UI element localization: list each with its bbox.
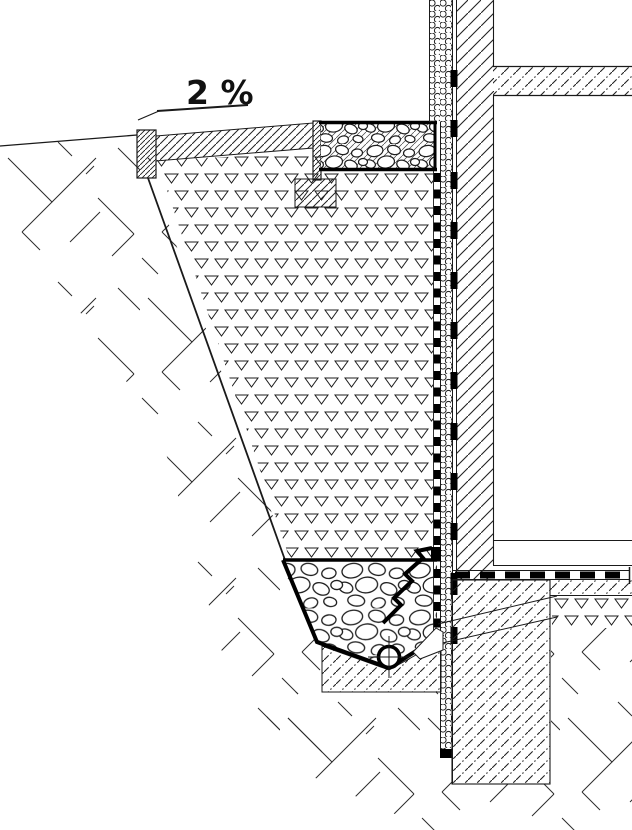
interior-floor-layers (493, 541, 632, 566)
kerb-block (137, 130, 156, 178)
construction-detail-drawing: 2 % (0, 0, 632, 830)
underslab-gravel-layer (552, 597, 632, 626)
insulation-end-cap (440, 749, 452, 758)
slope-symbol-tick (138, 111, 159, 120)
perimeter-insulation-top (429, 0, 452, 122)
slope-annotation: 2 % (138, 73, 254, 120)
strip-footing (452, 580, 550, 784)
foundation-slab-band (550, 580, 632, 596)
section-drawing-canvas: 2 % (0, 0, 632, 830)
concrete-haunch-block (295, 179, 336, 207)
ground-floor-slab (493, 66, 632, 96)
surface-gravel-strip (319, 121, 437, 171)
basement-wall (456, 0, 494, 580)
